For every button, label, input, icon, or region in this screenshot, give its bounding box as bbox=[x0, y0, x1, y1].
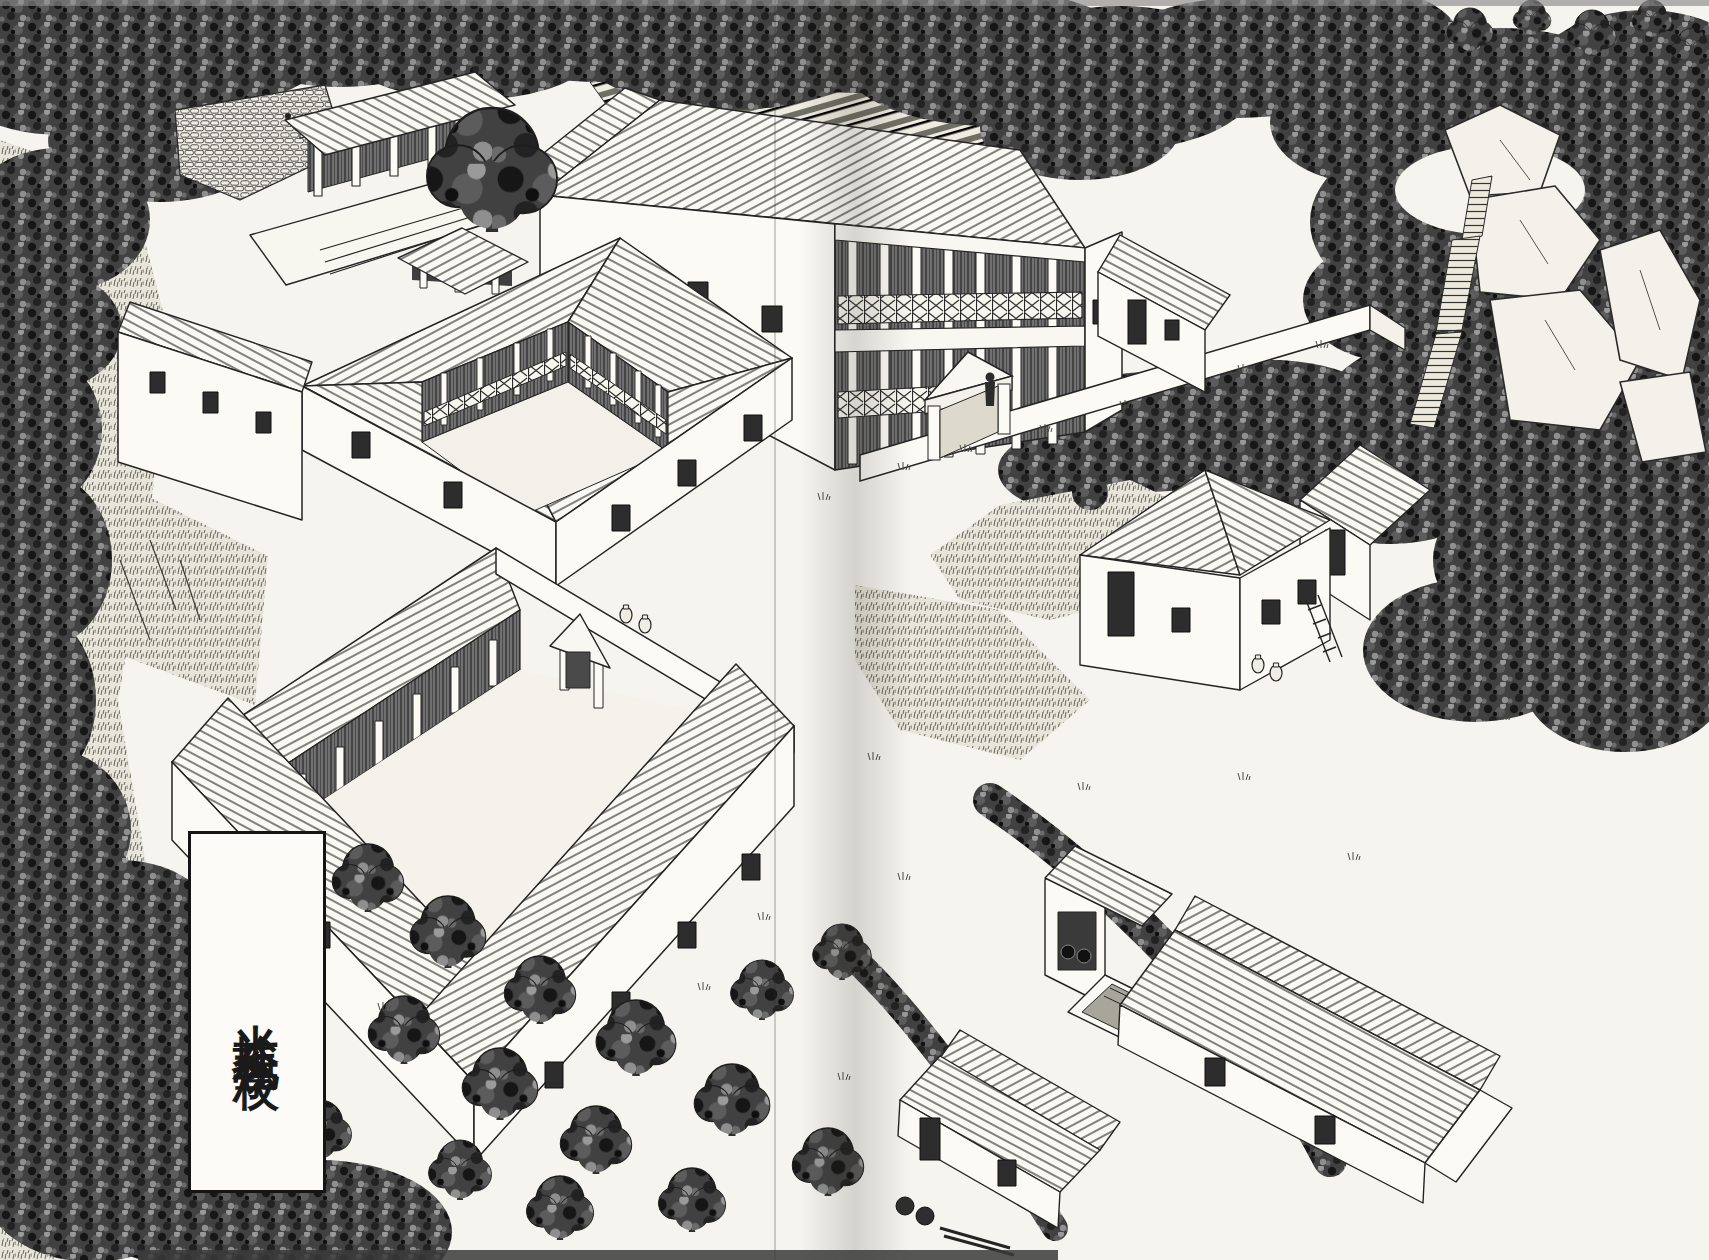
book-spread-illustration: 米埃札學校 bbox=[0, 0, 1709, 1260]
label-text: 米埃札學校 bbox=[234, 987, 280, 1037]
scan-edge-top bbox=[0, 0, 1709, 6]
scan-edge-bottom bbox=[138, 1250, 1058, 1260]
page-crease-line bbox=[774, 0, 776, 1260]
courtyard-figure bbox=[985, 373, 995, 407]
label-box: 米埃札學校 bbox=[188, 831, 326, 1193]
